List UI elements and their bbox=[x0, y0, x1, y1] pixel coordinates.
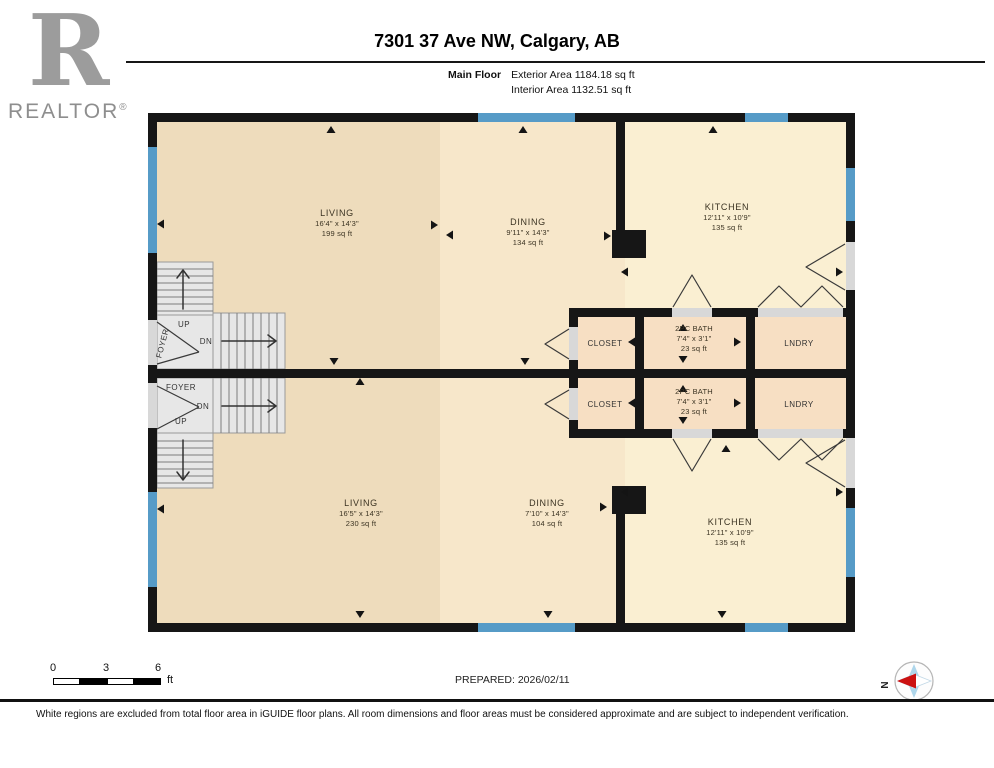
living-bottom-label: LIVING bbox=[344, 498, 378, 508]
realtor-logo: R REALTOR® bbox=[8, 4, 126, 130]
chimney-flue bbox=[612, 486, 646, 514]
living-bottom-dims: 16'5" x 14'3" bbox=[339, 509, 383, 518]
floor-label: Main Floor bbox=[448, 69, 501, 99]
living-top-label: LIVING bbox=[320, 208, 354, 218]
prepared-date: PREPARED: 2026/02/11 bbox=[455, 674, 570, 686]
up-bottom-label: UP bbox=[175, 417, 187, 426]
bath-bottom-label: 2PC BATH bbox=[675, 387, 713, 396]
foyer-bottom-label: FOYER bbox=[166, 383, 196, 392]
scale-bar-segments bbox=[53, 678, 161, 685]
window bbox=[846, 508, 855, 577]
page-title: 7301 37 Ave NW, Calgary, AB bbox=[0, 31, 994, 52]
laundry-top-label: LNDRY bbox=[784, 339, 814, 348]
exterior-area: Exterior Area 1184.18 sq ft bbox=[511, 69, 635, 81]
window bbox=[846, 168, 855, 221]
bath-top-area: 23 sq ft bbox=[681, 344, 708, 353]
laundry-bottom-label: LNDRY bbox=[784, 400, 814, 409]
kitchen-top-label: KITCHEN bbox=[705, 202, 749, 212]
interior-area: Interior Area 1132.51 sq ft bbox=[511, 84, 635, 96]
window bbox=[148, 147, 157, 253]
closet-bottom-label: CLOSET bbox=[587, 400, 622, 409]
dining-bottom-area: 104 sq ft bbox=[532, 519, 563, 528]
header-rule bbox=[37, 61, 985, 63]
chimney-flue bbox=[612, 230, 646, 258]
up-top-label: UP bbox=[178, 320, 190, 329]
kitchen-bottom-area: 135 sq ft bbox=[715, 538, 746, 547]
living-top-area: 199 sq ft bbox=[322, 229, 353, 238]
living-top-dims: 16'4" x 14'3" bbox=[315, 219, 359, 228]
closet-top-label: CLOSET bbox=[587, 339, 622, 348]
bath-bottom-area: 23 sq ft bbox=[681, 407, 708, 416]
scale-tick-6: 6 bbox=[155, 662, 161, 674]
realtor-r-icon: R bbox=[8, 4, 126, 100]
registered-mark: ® bbox=[119, 102, 128, 113]
floor-info: Main Floor Exterior Area 1184.18 sq ft I… bbox=[448, 69, 635, 99]
window bbox=[478, 623, 575, 632]
stair-flight-up bbox=[157, 262, 213, 315]
realtor-logo-text: REALTOR bbox=[8, 100, 119, 123]
window bbox=[148, 492, 157, 587]
scale-unit: ft bbox=[167, 674, 173, 686]
north-label: N bbox=[880, 681, 891, 688]
kitchen-top-area: 135 sq ft bbox=[712, 223, 743, 232]
down-bottom-label: DN bbox=[197, 402, 210, 411]
bath-top-dims: 7'4" x 3'1" bbox=[677, 334, 712, 343]
down-top-label: DN bbox=[200, 337, 213, 346]
dining-bottom-label: DINING bbox=[529, 498, 565, 508]
dining-top-dims: 9'11" x 14'3" bbox=[506, 228, 549, 237]
dining-top-label: DINING bbox=[510, 217, 546, 227]
footer-rule bbox=[0, 699, 994, 702]
window bbox=[478, 113, 575, 122]
kitchen-top-dims: 12'11" x 10'9" bbox=[703, 213, 751, 222]
scale-tick-0: 0 bbox=[50, 662, 56, 674]
dining-bottom-dims: 7'10" x 14'3" bbox=[525, 509, 569, 518]
floor-plan: LIVING 16'4" x 14'3" 199 sq ft DINING 9'… bbox=[0, 0, 994, 768]
bath-top-label: 2PC BATH bbox=[675, 324, 713, 333]
scale-bar: 0 3 6 ft bbox=[53, 662, 243, 692]
bath-bottom-dims: 7'4" x 3'1" bbox=[677, 397, 712, 406]
disclaimer-text: White regions are excluded from total fl… bbox=[36, 709, 849, 720]
dining-top-area: 134 sq ft bbox=[513, 238, 544, 247]
living-bottom-area: 230 sq ft bbox=[346, 519, 377, 528]
window bbox=[745, 623, 788, 632]
window bbox=[745, 113, 788, 122]
kitchen-bottom-dims: 12'11" x 10'9" bbox=[706, 528, 754, 537]
kitchen-bottom-label: KITCHEN bbox=[708, 517, 752, 527]
scale-tick-3: 3 bbox=[103, 662, 109, 674]
